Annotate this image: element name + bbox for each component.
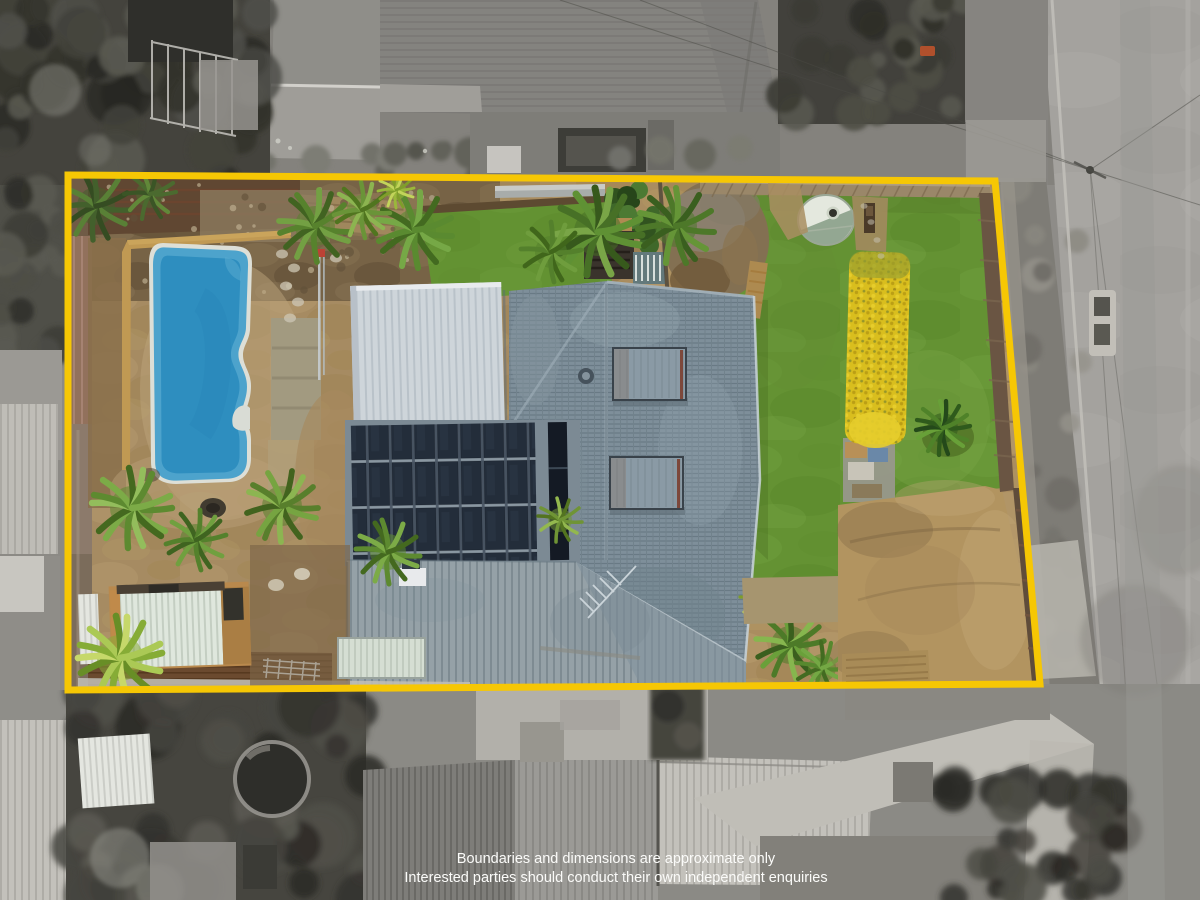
svg-text:Interested parties should cond: Interested parties should conduct their … (404, 870, 827, 886)
svg-text:Boundaries and dimensions are: Boundaries and dimensions are approximat… (457, 851, 776, 867)
